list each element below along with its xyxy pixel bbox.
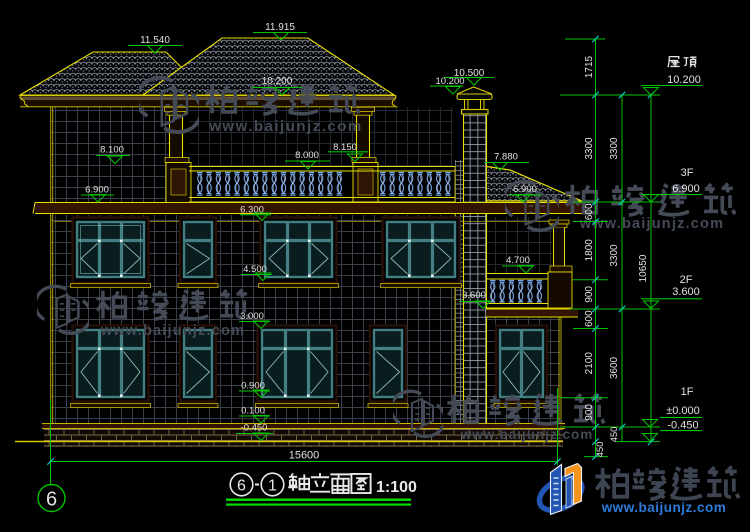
svg-text:10650: 10650	[638, 254, 649, 282]
svg-text:2F: 2F	[680, 274, 693, 286]
svg-text:15600: 15600	[289, 450, 320, 462]
svg-text:450: 450	[595, 442, 606, 458]
svg-text:6.900: 6.900	[672, 183, 700, 195]
svg-text:0.100: 0.100	[241, 406, 265, 417]
svg-text:6: 6	[46, 489, 57, 511]
svg-text:www.baijunjz.com: www.baijunjz.com	[100, 323, 245, 339]
svg-text:-0.450: -0.450	[667, 420, 698, 432]
svg-text:1: 1	[268, 478, 277, 495]
svg-text:10.200: 10.200	[667, 74, 701, 86]
svg-text:3.600: 3.600	[462, 290, 486, 301]
svg-text:11.540: 11.540	[140, 35, 170, 46]
svg-text:www.baijunjz.com: www.baijunjz.com	[460, 427, 594, 442]
svg-text:6.300: 6.300	[240, 205, 264, 216]
svg-text:3300: 3300	[609, 244, 620, 267]
svg-text:600: 600	[584, 310, 595, 327]
svg-text:10.200: 10.200	[262, 76, 293, 87]
svg-text:11.915: 11.915	[265, 22, 295, 33]
svg-text:450: 450	[609, 427, 620, 443]
svg-text:6.900: 6.900	[85, 185, 109, 196]
svg-text:10.200: 10.200	[435, 76, 464, 87]
svg-text:±0.000: ±0.000	[666, 405, 700, 417]
svg-text:3F: 3F	[681, 167, 694, 179]
svg-text:7.880: 7.880	[494, 152, 518, 163]
svg-text:1F: 1F	[681, 386, 694, 398]
svg-text:3600: 3600	[609, 356, 620, 379]
svg-text:6: 6	[237, 478, 246, 495]
svg-text:1:100: 1:100	[376, 479, 417, 496]
svg-text:3300: 3300	[584, 137, 595, 160]
svg-text:4.700: 4.700	[506, 255, 530, 266]
svg-text:2100: 2100	[584, 352, 595, 375]
svg-text:600: 600	[584, 203, 595, 220]
svg-text:www.baijunjz.com: www.baijunjz.com	[601, 500, 727, 515]
svg-text:3.000: 3.000	[240, 311, 264, 322]
svg-text:3300: 3300	[609, 137, 620, 160]
svg-text:www.baijunjz.com: www.baijunjz.com	[208, 118, 362, 135]
svg-text:8.000: 8.000	[295, 150, 319, 161]
svg-text:6.900: 6.900	[513, 184, 537, 195]
svg-text:900: 900	[584, 286, 595, 303]
svg-text:1800: 1800	[584, 239, 595, 262]
svg-text:-0.450: -0.450	[241, 423, 268, 434]
svg-text:1715: 1715	[584, 55, 595, 78]
svg-text:8.100: 8.100	[100, 145, 124, 156]
svg-text:3.600: 3.600	[672, 286, 700, 298]
svg-text:900: 900	[584, 404, 595, 421]
